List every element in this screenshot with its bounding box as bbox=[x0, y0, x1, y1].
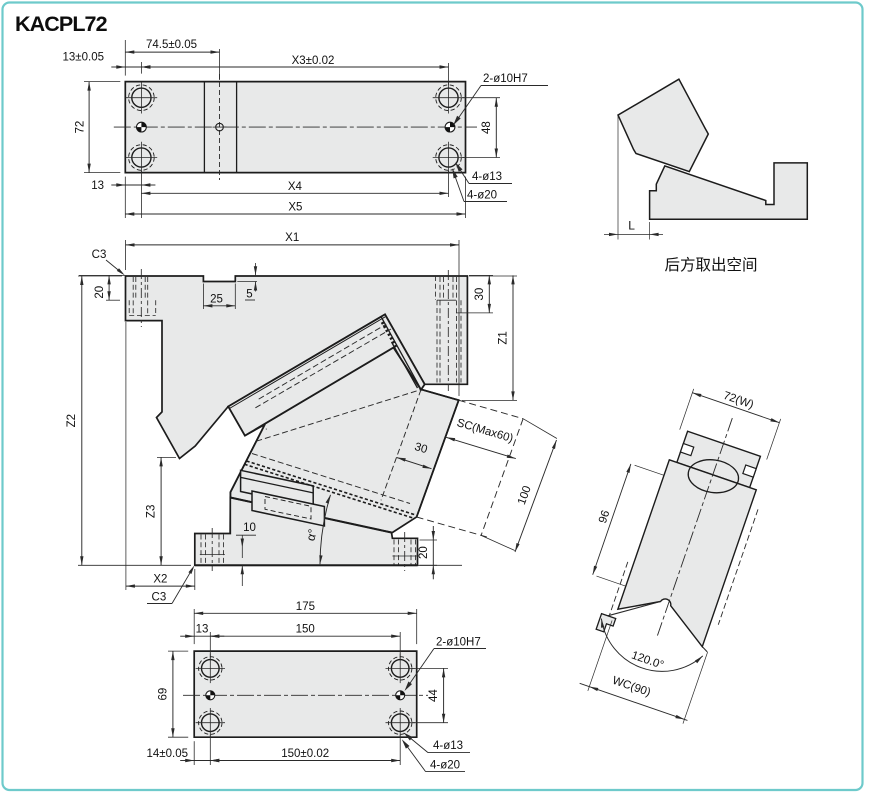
svg-text:44: 44 bbox=[428, 689, 440, 702]
svg-text:13: 13 bbox=[196, 624, 209, 636]
svg-text:20: 20 bbox=[94, 286, 106, 299]
svg-text:20: 20 bbox=[418, 546, 430, 559]
svg-text:30: 30 bbox=[474, 288, 486, 301]
svg-text:25: 25 bbox=[210, 293, 223, 305]
svg-text:175: 175 bbox=[296, 601, 315, 613]
svg-text:X4: X4 bbox=[288, 181, 303, 193]
svg-text:4-ø13: 4-ø13 bbox=[433, 740, 463, 752]
svg-text:2-ø10H7: 2-ø10H7 bbox=[436, 637, 481, 649]
svg-text:5: 5 bbox=[246, 289, 252, 301]
svg-text:2-ø10H7: 2-ø10H7 bbox=[483, 73, 528, 85]
svg-text:74.5±0.05: 74.5±0.05 bbox=[146, 39, 197, 51]
svg-text:72: 72 bbox=[75, 121, 87, 134]
svg-text:X2: X2 bbox=[153, 574, 167, 586]
svg-text:4-ø13: 4-ø13 bbox=[472, 171, 502, 183]
svg-text:150±0.02: 150±0.02 bbox=[281, 748, 329, 760]
svg-text:C3: C3 bbox=[92, 249, 107, 261]
svg-text:X3±0.02: X3±0.02 bbox=[292, 55, 335, 67]
svg-text:13±0.05: 13±0.05 bbox=[63, 52, 105, 64]
svg-text:4-ø20: 4-ø20 bbox=[467, 190, 497, 202]
svg-text:SC(Max60): SC(Max60) bbox=[455, 417, 514, 445]
svg-text:Z2: Z2 bbox=[66, 414, 78, 427]
svg-text:13: 13 bbox=[91, 180, 104, 192]
svg-text:Z1: Z1 bbox=[498, 331, 510, 344]
svg-text:14±0.05: 14±0.05 bbox=[147, 748, 189, 760]
svg-text:150: 150 bbox=[296, 624, 315, 636]
svg-text:KACPL72: KACPL72 bbox=[15, 12, 108, 36]
svg-text:WC(90): WC(90) bbox=[611, 675, 653, 699]
svg-text:96: 96 bbox=[597, 509, 613, 525]
svg-text:C3: C3 bbox=[152, 592, 167, 604]
svg-text:48: 48 bbox=[481, 121, 493, 134]
svg-text:69: 69 bbox=[157, 688, 169, 701]
svg-text:X5: X5 bbox=[288, 202, 302, 214]
svg-text:10: 10 bbox=[243, 522, 256, 534]
svg-text:L: L bbox=[628, 219, 635, 233]
svg-text:4-ø20: 4-ø20 bbox=[430, 760, 460, 772]
svg-text:100: 100 bbox=[516, 484, 534, 506]
svg-text:X1: X1 bbox=[285, 232, 299, 244]
svg-text:后方取出空间: 后方取出空间 bbox=[664, 256, 757, 274]
svg-text:Z3: Z3 bbox=[146, 505, 158, 518]
svg-text:120.0°: 120.0° bbox=[630, 650, 665, 672]
